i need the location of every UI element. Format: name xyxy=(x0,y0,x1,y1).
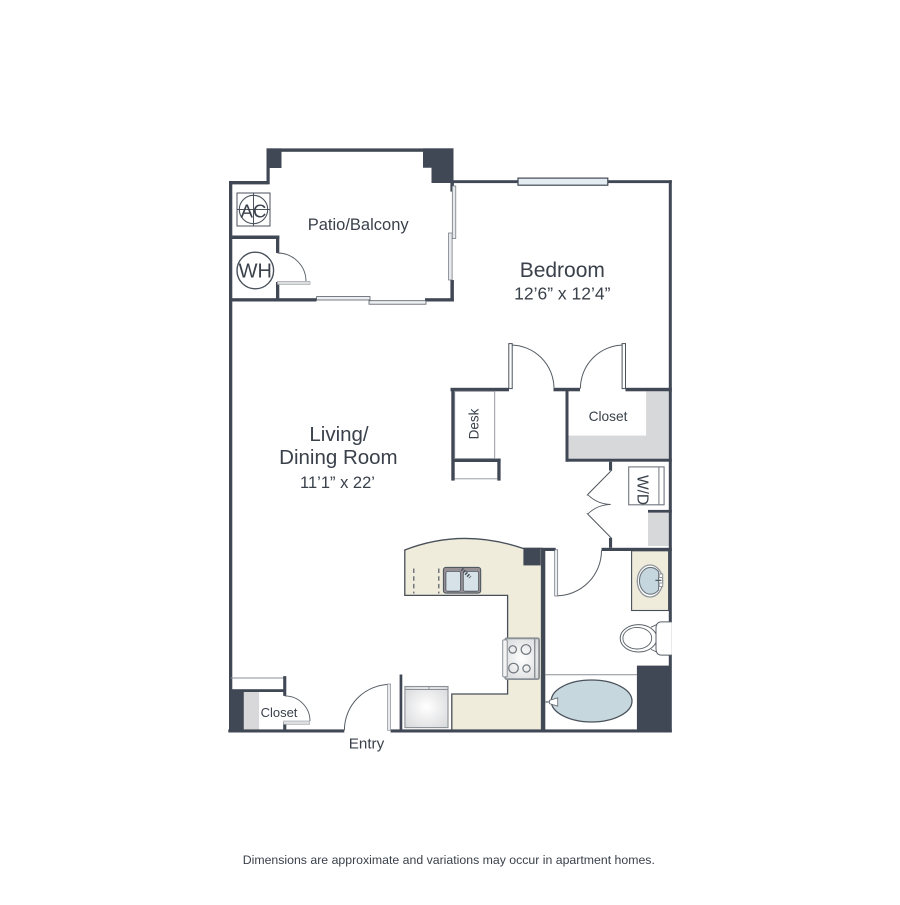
svg-text:Closet: Closet xyxy=(589,409,628,424)
svg-text:Closet: Closet xyxy=(261,705,298,720)
svg-text:Dining Room: Dining Room xyxy=(279,446,398,469)
svg-text:W/D: W/D xyxy=(634,475,651,505)
svg-text:Desk: Desk xyxy=(467,408,482,439)
svg-text:11’1” x 22’: 11’1” x 22’ xyxy=(300,474,375,492)
svg-text:WH: WH xyxy=(239,260,272,282)
svg-text:12’6” x 12’4”: 12’6” x 12’4” xyxy=(514,284,610,304)
svg-text:Dimensions are approximate and: Dimensions are approximate and variation… xyxy=(243,853,655,867)
svg-text:Bedroom: Bedroom xyxy=(520,259,605,282)
svg-text:Living/: Living/ xyxy=(309,423,369,446)
svg-text:Entry: Entry xyxy=(349,736,385,753)
svg-text:Patio/Balcony: Patio/Balcony xyxy=(308,216,410,234)
svg-text:AC: AC xyxy=(241,201,267,222)
